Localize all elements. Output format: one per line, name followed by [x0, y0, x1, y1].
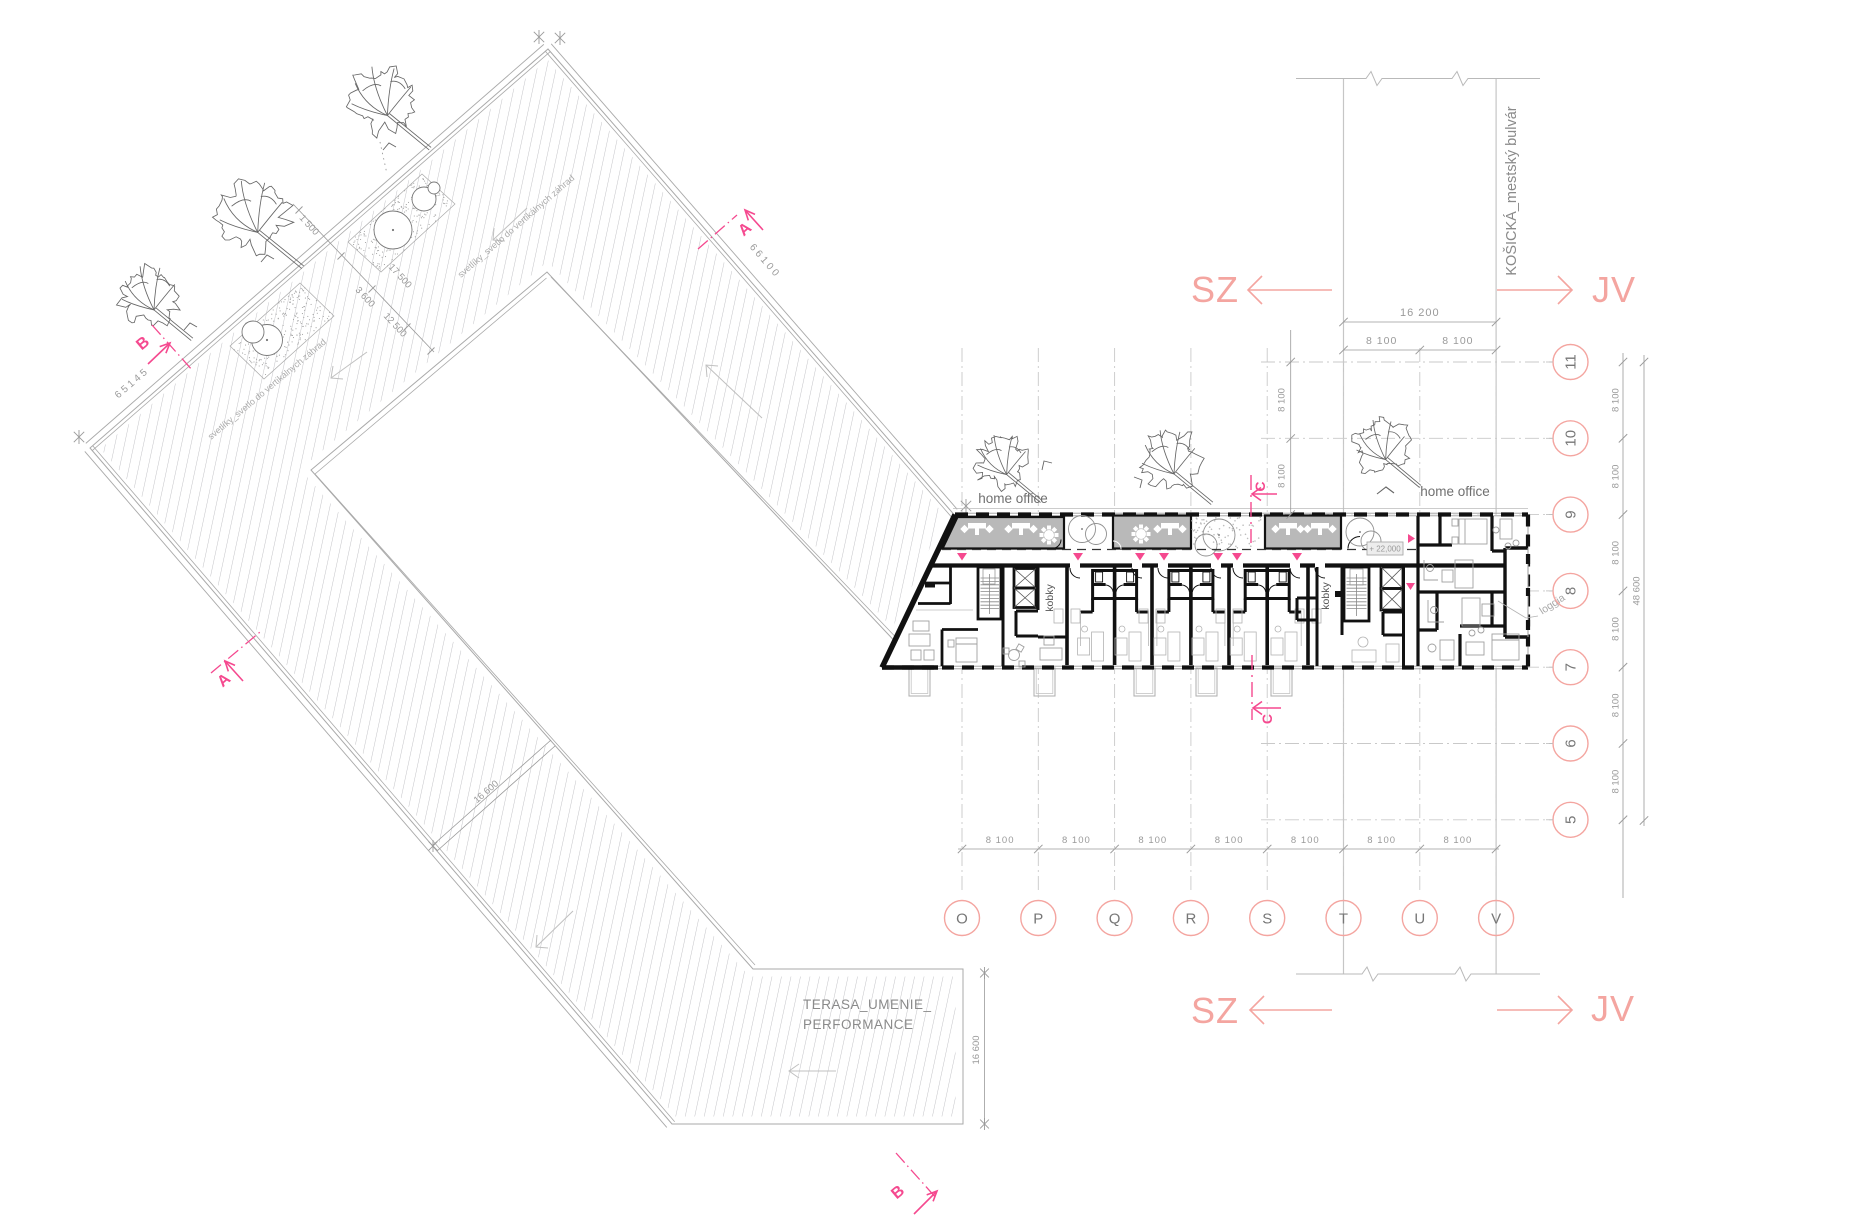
svg-text:7: 7 [1563, 663, 1580, 671]
svg-text:TERASA_UMENIE_: TERASA_UMENIE_ [803, 997, 932, 1012]
svg-text:8 100: 8 100 [1611, 770, 1622, 794]
svg-text:SZ: SZ [1191, 990, 1239, 1031]
svg-text:8 100: 8 100 [986, 835, 1015, 846]
svg-text:O: O [956, 911, 968, 928]
svg-text:8 100: 8 100 [1444, 835, 1473, 846]
svg-text:+ 22,000: + 22,000 [1369, 545, 1401, 554]
svg-text:P: P [1033, 911, 1043, 928]
svg-text:8 100: 8 100 [1366, 335, 1397, 347]
svg-text:Q: Q [1109, 911, 1121, 928]
svg-text:U: U [1414, 911, 1425, 928]
svg-text:JV: JV [1592, 269, 1636, 310]
svg-text:8 100: 8 100 [1442, 335, 1473, 347]
svg-text:8 100: 8 100 [1611, 465, 1622, 489]
svg-text:V: V [1491, 911, 1501, 928]
svg-text:6: 6 [1563, 739, 1580, 747]
svg-text:5: 5 [1563, 816, 1580, 824]
svg-text:PERFORMANCE: PERFORMANCE [803, 1017, 914, 1032]
svg-text:8: 8 [1563, 587, 1580, 595]
svg-text:8 100: 8 100 [1611, 617, 1622, 641]
svg-text:8 100: 8 100 [1611, 388, 1622, 412]
svg-text:48 600: 48 600 [1632, 576, 1643, 605]
svg-text:10: 10 [1563, 430, 1580, 447]
svg-text:home office: home office [1420, 484, 1490, 499]
svg-text:SZ: SZ [1191, 269, 1239, 310]
svg-text:JV: JV [1591, 988, 1635, 1029]
svg-text:home office: home office [978, 491, 1048, 506]
svg-text:8 100: 8 100 [1367, 835, 1396, 846]
svg-text:11: 11 [1563, 354, 1580, 370]
svg-text:8 100: 8 100 [1611, 541, 1622, 565]
svg-text:8 100: 8 100 [1277, 388, 1288, 412]
svg-text:C: C [1252, 481, 1268, 491]
svg-text:9: 9 [1563, 510, 1580, 518]
svg-text:kobky: kobky [1044, 584, 1056, 612]
svg-text:T: T [1339, 911, 1348, 928]
svg-text:8 100: 8 100 [1291, 835, 1320, 846]
svg-text:16 200: 16 200 [1400, 307, 1440, 319]
svg-text:S: S [1262, 911, 1272, 928]
svg-text:8 100: 8 100 [1277, 464, 1288, 488]
svg-text:8 100: 8 100 [1215, 835, 1244, 846]
svg-text:KOŠICKÁ_mestský bulvár: KOŠICKÁ_mestský bulvár [1503, 106, 1520, 275]
svg-text:kobky: kobky [1320, 582, 1332, 610]
svg-text:C: C [1259, 714, 1275, 724]
svg-text:8 100: 8 100 [1611, 694, 1622, 718]
svg-text:16 600: 16 600 [971, 1035, 982, 1064]
svg-text:8 100: 8 100 [1138, 835, 1167, 846]
svg-text:8 100: 8 100 [1062, 835, 1091, 846]
svg-text:R: R [1185, 911, 1196, 928]
